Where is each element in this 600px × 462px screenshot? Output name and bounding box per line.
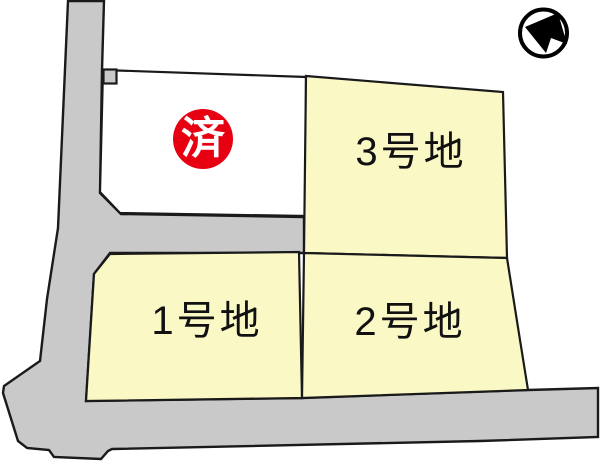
page: { "plots": { "lot1": { "label": "1号地" },… bbox=[0, 0, 600, 462]
lot-3-label: 3号地 bbox=[355, 132, 466, 172]
plot-map: 1号地 2号地 3号地 済 bbox=[0, 0, 600, 462]
lot-1-label: 1号地 bbox=[151, 301, 262, 341]
north-arrow-icon bbox=[520, 10, 567, 57]
sold-badge: 済 bbox=[173, 109, 233, 169]
road-notch-shape bbox=[104, 70, 117, 84]
lot-2-label: 2号地 bbox=[354, 302, 465, 342]
sold-badge-text: 済 bbox=[181, 117, 225, 161]
site-plan-svg bbox=[0, 0, 600, 462]
